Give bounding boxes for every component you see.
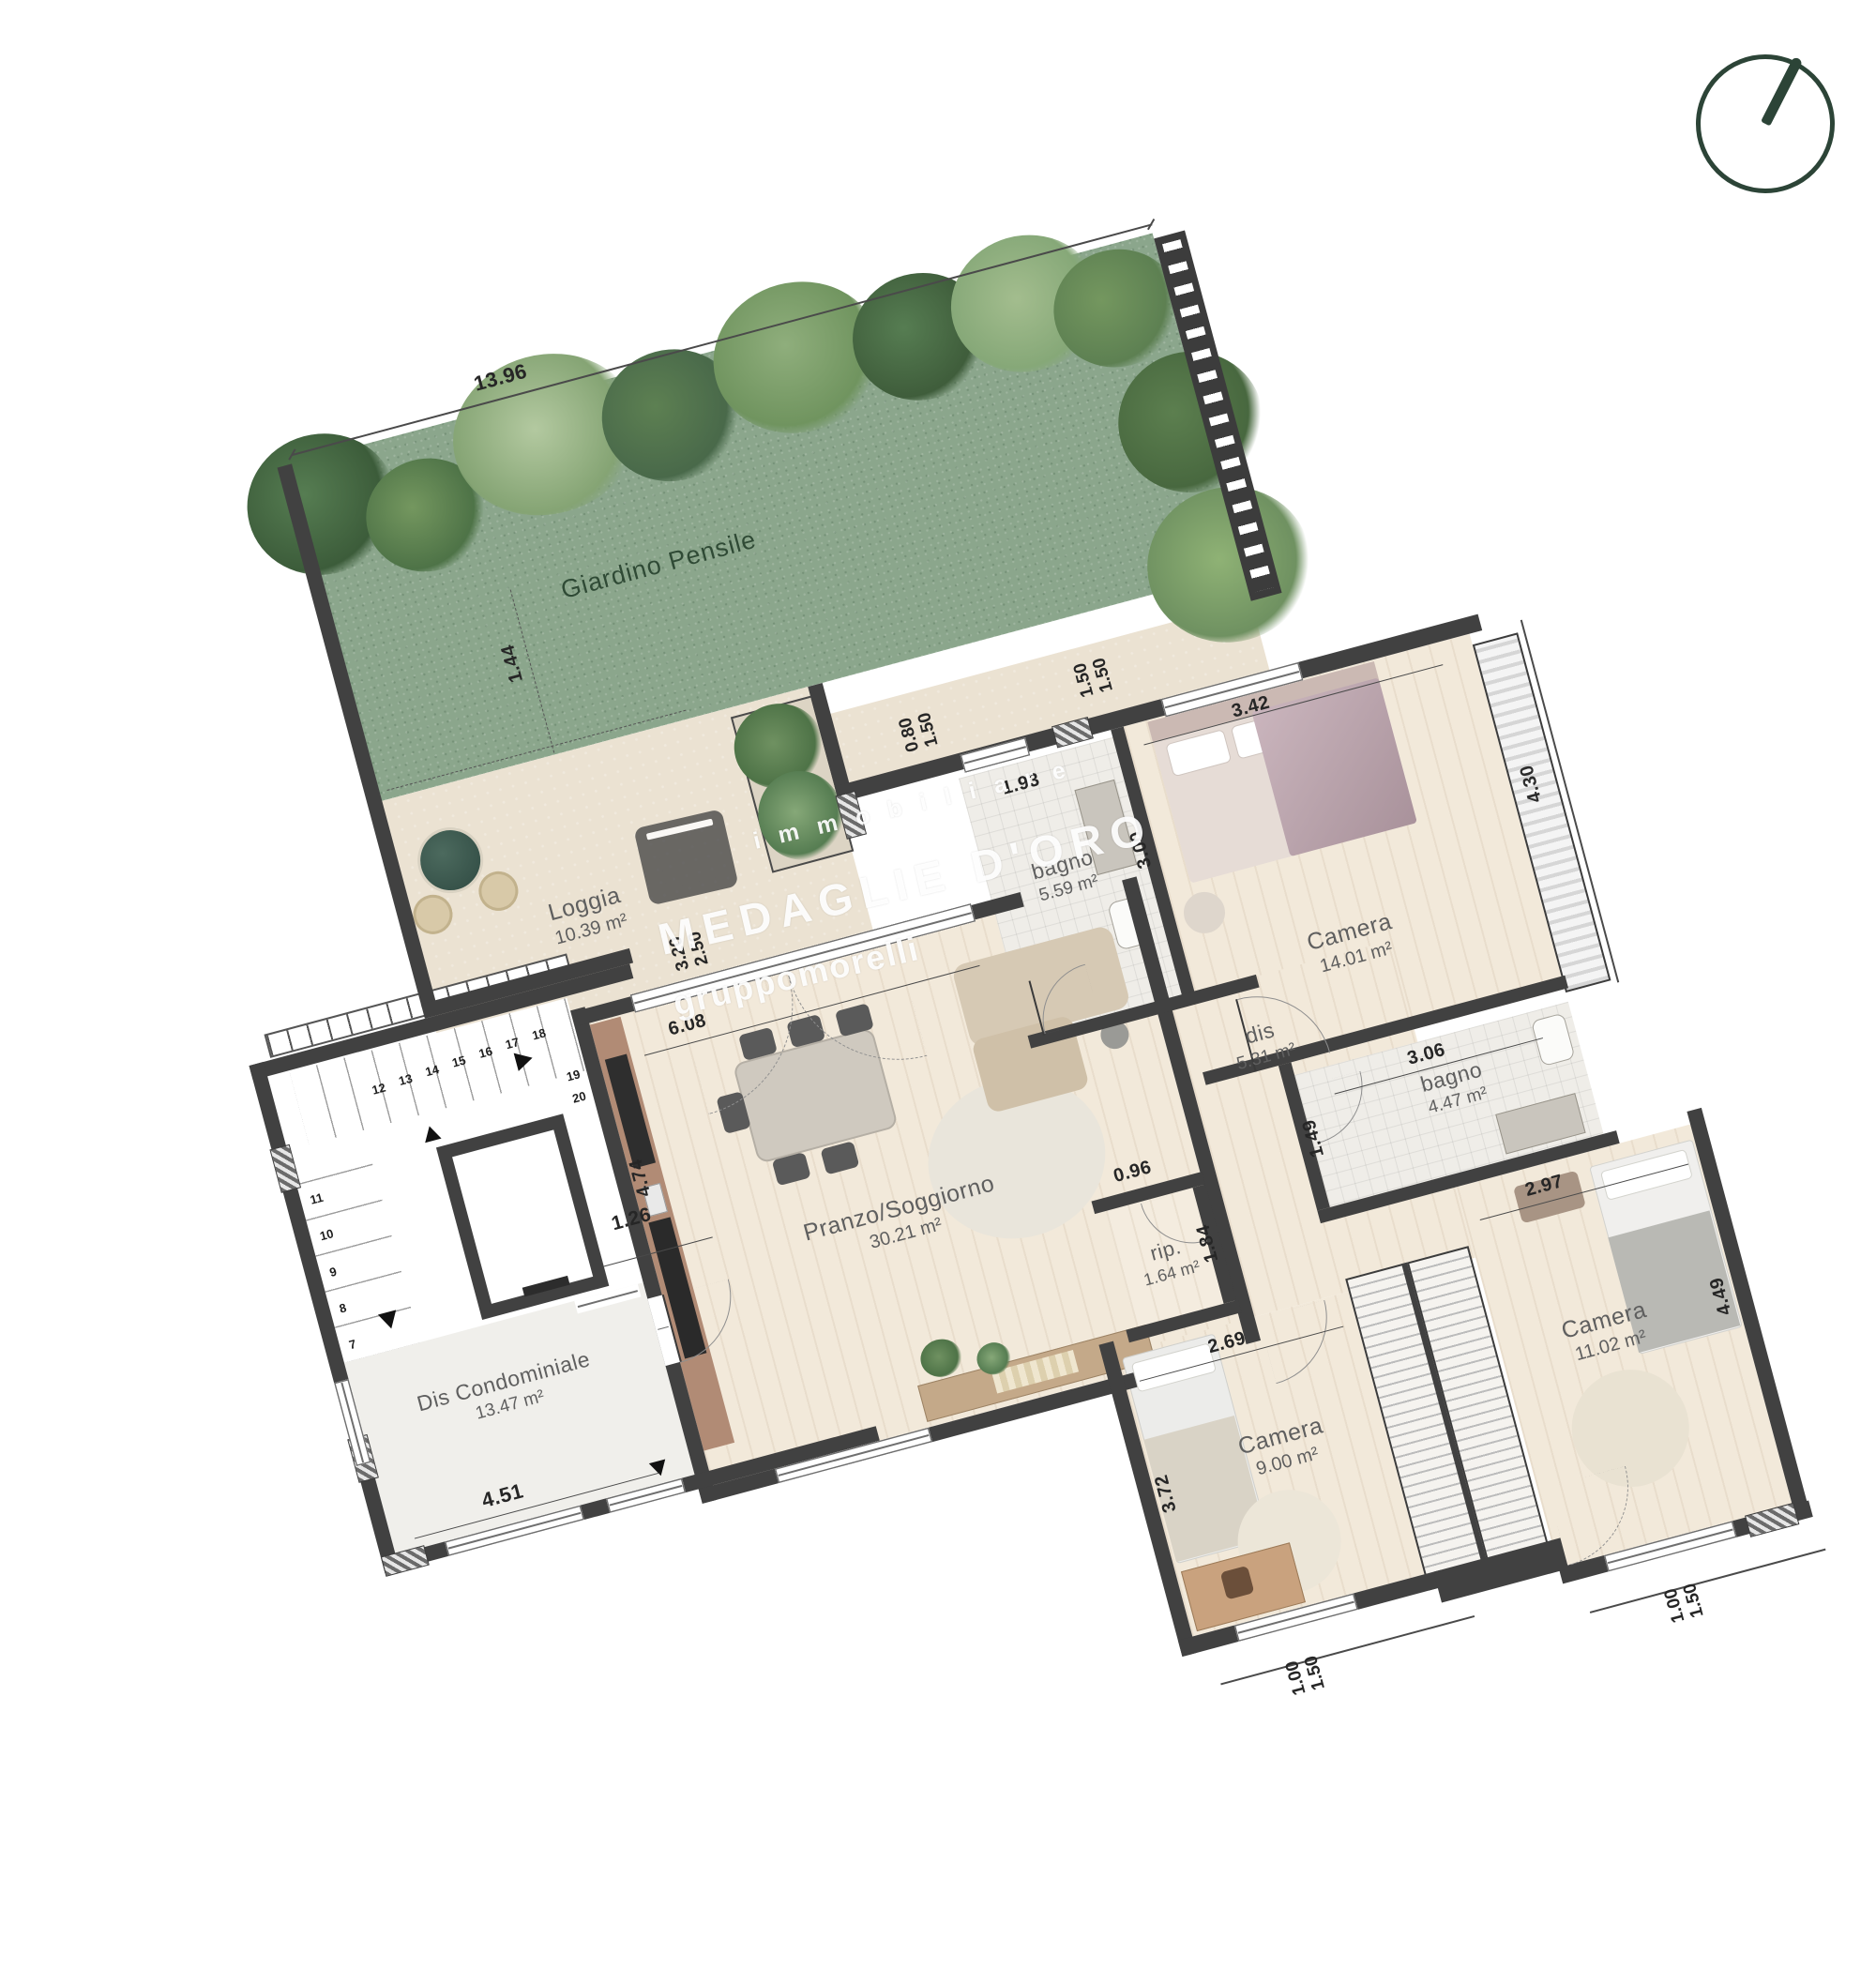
camera3-window-dims: 1.001.50: [1657, 1568, 1712, 1637]
stair-arrow-icon: [421, 1124, 442, 1143]
floor-plan: Giardino Pensile 13.96 1.44 Loggia 10.39…: [83, 151, 1849, 1969]
north-compass-icon: [1696, 54, 1835, 193]
stair-number: 20: [571, 1089, 588, 1106]
camera2-window-dims: 1.001.50: [1278, 1641, 1333, 1709]
